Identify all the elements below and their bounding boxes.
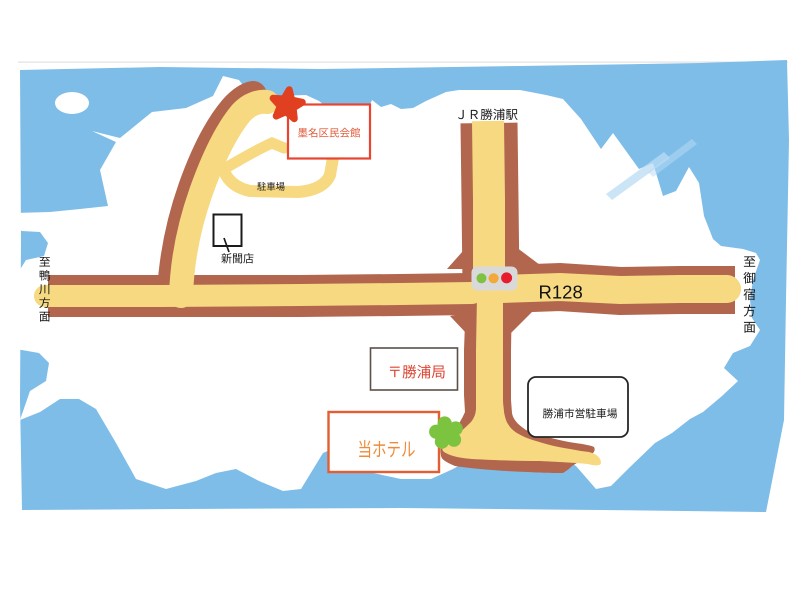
svg-text:R128: R128 xyxy=(539,282,583,303)
